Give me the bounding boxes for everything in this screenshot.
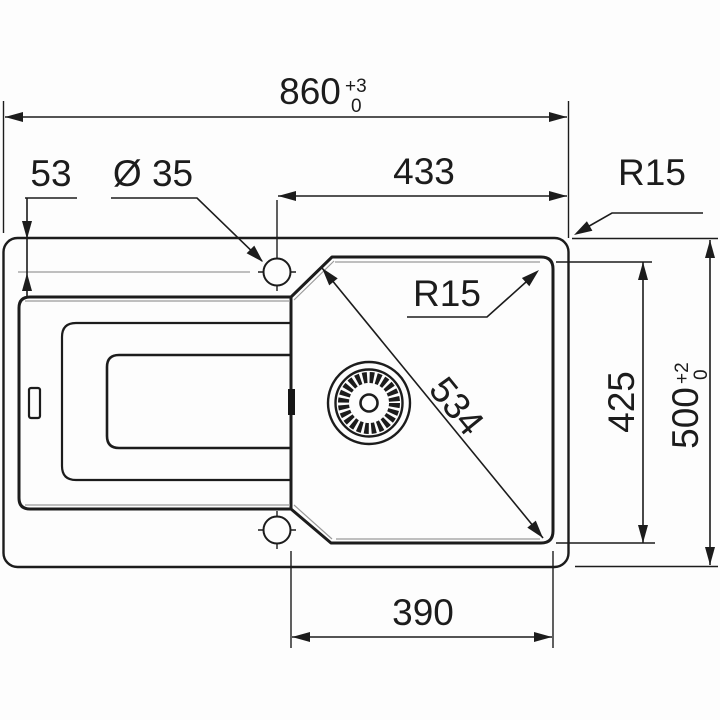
dim-bowl-radius: R15 (407, 270, 539, 317)
sink-technical-drawing: 860 +3 0 53 Ø 35 433 R15 R15 534 (0, 0, 720, 720)
bowl-overflow-slot (288, 389, 295, 415)
dim-outer-radius: R15 (574, 152, 703, 235)
dim-overall-depth: 500 +2 0 (572, 239, 718, 567)
dim-r15-bowl-label: R15 (413, 273, 481, 314)
dim-53-label: 53 (30, 153, 71, 194)
dim-bowl-depth: 425 (556, 262, 655, 543)
dim-433-label: 433 (393, 151, 455, 192)
dim-860-tol-minus: 0 (351, 96, 362, 117)
dim-390-label: 390 (392, 592, 454, 633)
overflow-slot (29, 388, 40, 418)
drawing-canvas: 860 +3 0 53 Ø 35 433 R15 R15 534 (0, 0, 720, 720)
dim-500-label: 500 (665, 387, 706, 449)
dim-bowl-width: 390 (291, 551, 553, 648)
faucet-hole-top (18, 200, 296, 291)
dim-425-label: 425 (601, 371, 642, 433)
strainer-center-hole (361, 395, 378, 412)
dim-overall-width: 860 +3 0 (4, 71, 569, 238)
drainboard-step-2 (107, 355, 291, 448)
faucet-hole-bottom (258, 511, 296, 549)
dim-500-tol-minus: 0 (691, 369, 712, 380)
dim-faucet-offset: 53 (22, 153, 77, 296)
dim-860-label: 860 (279, 71, 341, 112)
dim-hole-diameter: Ø 35 (111, 153, 263, 262)
drain-strainer (328, 362, 410, 444)
dim-r15-outer-label: R15 (618, 152, 686, 193)
dim-860-tol-plus: +3 (345, 76, 367, 97)
sink-outer-rim (4, 238, 569, 567)
dim-500-tol-plus: +2 (672, 362, 693, 384)
dim-faucet-to-right: 433 (278, 151, 567, 201)
dim-534-label: 534 (421, 369, 492, 443)
drainboard-step-1 (62, 323, 291, 480)
dim-d35-label: Ø 35 (113, 153, 193, 194)
sink-outline (4, 238, 569, 567)
